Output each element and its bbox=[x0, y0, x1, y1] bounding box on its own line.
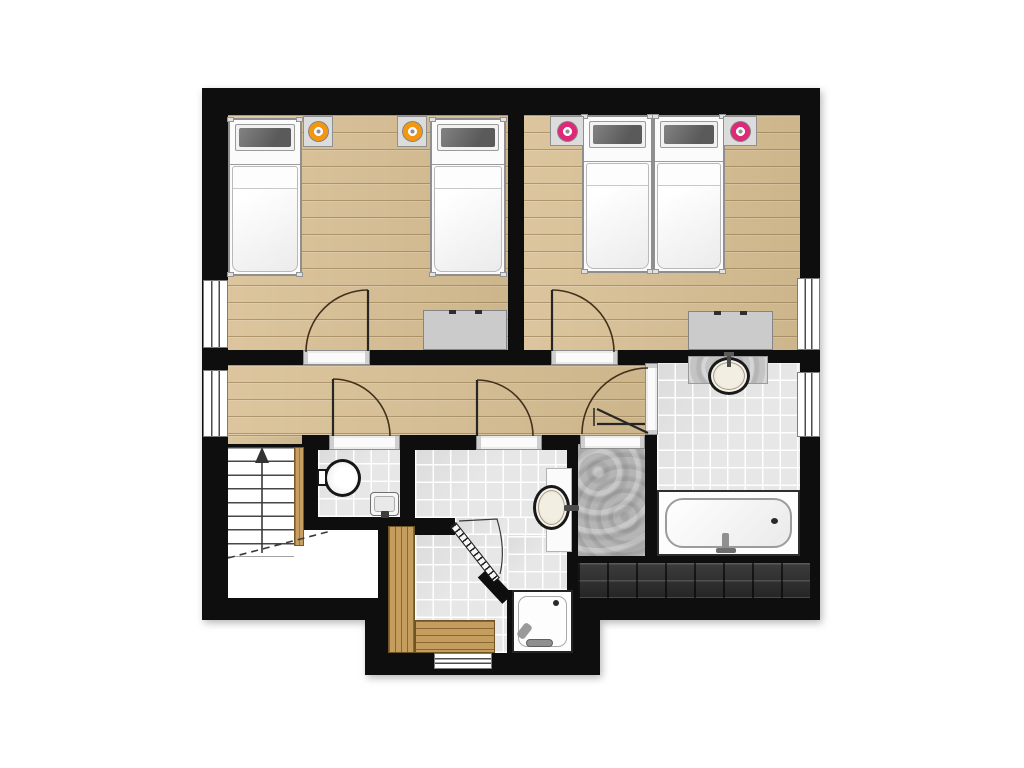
dresser-right bbox=[688, 311, 773, 350]
duvet-fold bbox=[587, 164, 648, 186]
dresser-left bbox=[423, 310, 507, 350]
door-sill-wc bbox=[329, 435, 400, 450]
bed-corner-post bbox=[429, 272, 436, 277]
pillow bbox=[660, 121, 718, 148]
ring-speaker-icon bbox=[730, 121, 751, 142]
bed-2 bbox=[430, 118, 506, 276]
door-sill-bedroom-left bbox=[303, 350, 370, 365]
toilet bbox=[317, 459, 361, 497]
sink-basin bbox=[538, 490, 565, 525]
bed-corner-post bbox=[652, 114, 659, 119]
bathtub bbox=[657, 490, 800, 556]
pillow-cushion bbox=[593, 125, 642, 144]
pillow-cushion bbox=[239, 128, 291, 147]
window-hallway bbox=[203, 370, 228, 437]
shower-grip bbox=[526, 639, 553, 647]
duvet-fold bbox=[658, 164, 720, 186]
tray-drain bbox=[553, 600, 559, 606]
bed-corner-post bbox=[227, 117, 234, 122]
toilet-flush bbox=[317, 469, 327, 486]
bed-corner-post bbox=[296, 272, 303, 277]
duvet bbox=[586, 163, 649, 269]
bed-3 bbox=[582, 115, 653, 273]
mattress-line bbox=[655, 161, 723, 162]
bed-corner-post bbox=[227, 272, 234, 277]
window-sauna bbox=[434, 653, 492, 669]
sink-basin bbox=[374, 496, 395, 512]
toilet-bowl bbox=[324, 459, 361, 497]
dresser-handle bbox=[475, 310, 482, 314]
mattress-line bbox=[230, 164, 300, 165]
tub-drain bbox=[771, 518, 778, 524]
window-bedroom-right bbox=[797, 278, 820, 350]
landing-floor bbox=[302, 530, 378, 598]
stair-stringer bbox=[294, 447, 304, 546]
mattress-line bbox=[432, 164, 504, 165]
bed-4 bbox=[653, 115, 725, 273]
storage-room-floor bbox=[578, 444, 645, 556]
mattress-line bbox=[584, 161, 651, 162]
nightstand-4 bbox=[723, 116, 757, 146]
bed-corner-post bbox=[296, 117, 303, 122]
duvet bbox=[657, 163, 721, 269]
duvet-fold bbox=[233, 167, 297, 189]
ring-speaker-icon bbox=[557, 121, 578, 142]
nightstand-2 bbox=[397, 116, 427, 147]
dresser-handle bbox=[449, 310, 456, 314]
sink-tap bbox=[381, 511, 389, 518]
sink-faucet bbox=[564, 505, 579, 511]
sink-right bbox=[708, 357, 750, 395]
door-sill-storage bbox=[580, 435, 645, 449]
shower-tray bbox=[512, 590, 573, 653]
dresser-handle bbox=[714, 311, 721, 315]
bed-corner-post bbox=[429, 117, 436, 122]
dresser-handle bbox=[740, 311, 747, 315]
window-bathroom-right bbox=[797, 372, 820, 437]
duvet bbox=[434, 166, 502, 272]
bed-corner-post bbox=[500, 272, 507, 277]
pillow bbox=[437, 124, 499, 151]
pillow-cushion bbox=[664, 125, 714, 144]
hallway-stair-edge bbox=[228, 435, 302, 444]
door-sill-bathroom-middle bbox=[476, 435, 542, 450]
sink-middle bbox=[533, 485, 570, 530]
pillow-cushion bbox=[441, 128, 495, 147]
hallway-floor bbox=[228, 365, 645, 435]
wc-sink bbox=[370, 492, 399, 516]
nightstand-3 bbox=[550, 116, 584, 146]
duvet bbox=[232, 166, 298, 272]
nightstand-1 bbox=[303, 116, 333, 147]
sauna-bench-left bbox=[388, 526, 415, 653]
pillow bbox=[235, 124, 295, 151]
sink-faucet-head bbox=[724, 352, 734, 356]
bed-corner-post bbox=[719, 269, 726, 274]
window-bedroom-left bbox=[203, 280, 228, 348]
ring-speaker-icon bbox=[402, 121, 423, 142]
door-sill-bathroom-right bbox=[645, 363, 658, 435]
ring-speaker-icon bbox=[308, 121, 329, 142]
sauna-bench-bottom bbox=[415, 620, 495, 653]
duvet-fold bbox=[435, 167, 501, 189]
bed-corner-post bbox=[500, 117, 507, 122]
door-sill-bedroom-right bbox=[551, 350, 618, 365]
tub-faucet-cross bbox=[716, 548, 736, 553]
roof-section-band bbox=[578, 563, 810, 598]
floor-plan bbox=[0, 0, 1024, 768]
stairs bbox=[228, 447, 294, 557]
bed-corner-post bbox=[652, 269, 659, 274]
pillow bbox=[589, 121, 646, 148]
bed-1 bbox=[228, 118, 302, 276]
bed-corner-post bbox=[581, 269, 588, 274]
